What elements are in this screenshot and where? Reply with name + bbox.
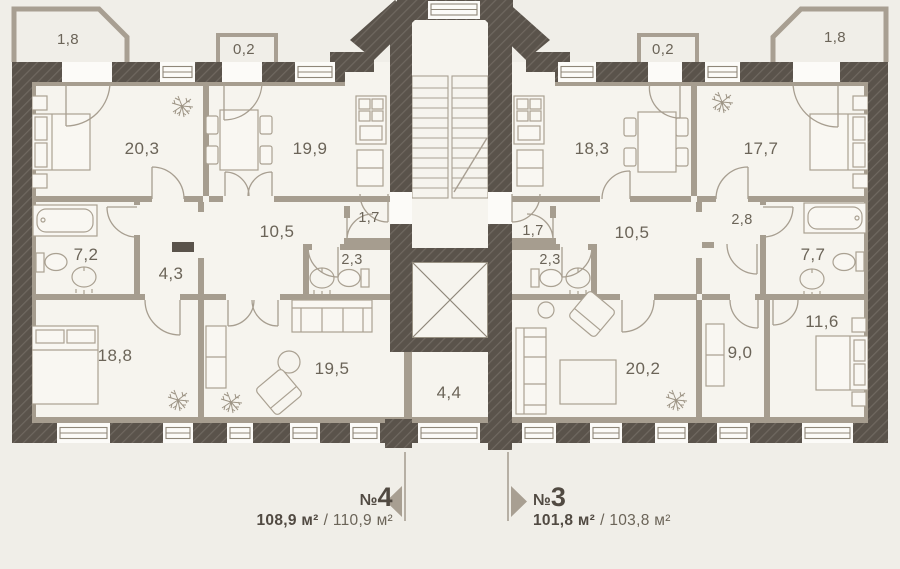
balcony-area-label: 0,2 <box>652 41 674 58</box>
room-area-label: 9,0 <box>728 343 753 362</box>
apartment-4-number: №4 <box>360 482 393 512</box>
kitchen-unit-left <box>356 96 386 186</box>
balcony-area-label: 1,8 <box>824 29 846 46</box>
room-area-label: 11,6 <box>805 312 838 331</box>
room-area-label: 20,3 <box>125 139 160 158</box>
room-area-label: 4,3 <box>159 264 184 283</box>
elevator <box>412 262 488 338</box>
room-area-label: 1,7 <box>522 223 543 239</box>
balcony-area-label: 0,2 <box>233 41 255 58</box>
apartment-3-area: 101,8 м²/ 103,8 м² <box>533 512 671 529</box>
floor-plan-page: 20,3 19,9 10,5 1,7 2,3 7,2 4,3 18,8 19,5… <box>0 0 900 569</box>
room-area-label: 2,8 <box>731 212 752 228</box>
toilet-left <box>36 253 67 272</box>
wardrobe-left <box>206 326 226 388</box>
room-area-label: 7,2 <box>74 245 99 264</box>
room-area-label: 4,4 <box>437 383 462 402</box>
room-area-label: 20,2 <box>626 359 661 378</box>
room-area-label: 1,7 <box>358 210 379 226</box>
wall-ducts <box>172 242 194 252</box>
room-area-label: 7,7 <box>801 245 826 264</box>
floor-plan: 20,3 19,9 10,5 1,7 2,3 7,2 4,3 18,8 19,5… <box>0 0 900 569</box>
bed-bottom-left <box>32 326 98 404</box>
room-area-label: 19,9 <box>293 139 328 158</box>
wardrobe-9-0 <box>706 324 724 386</box>
apartment-3-label[interactable]: №3 101,8 м²/ 103,8 м² <box>533 482 671 529</box>
apartment-4-area: 108,9 м²/ 110,9 м² <box>257 512 394 529</box>
apartment-4-label[interactable]: №4 108,9 м²/ 110,9 м² <box>257 482 394 529</box>
room-area-label: 19,5 <box>315 359 350 378</box>
apartment-dividers <box>405 452 508 521</box>
room-area-label: 2,3 <box>539 252 560 268</box>
room-area-label: 10,5 <box>615 223 650 242</box>
apartment-3-number: №3 <box>533 482 566 512</box>
bathtub-left <box>33 205 97 236</box>
sofa-left <box>292 300 372 332</box>
kitchen-unit-right <box>514 96 544 186</box>
room-area-label: 18,3 <box>575 139 610 158</box>
bathtub-right <box>804 203 866 233</box>
room-area-label: 10,5 <box>260 222 295 241</box>
balcony-area-label: 1,8 <box>57 31 79 48</box>
apartment-3-arrow-icon[interactable] <box>511 486 527 517</box>
room-area-label: 17,7 <box>744 139 779 158</box>
room-area-label: 2,3 <box>341 252 362 268</box>
room-area-label: 18,8 <box>98 346 133 365</box>
sofa-right <box>516 328 546 414</box>
toilet-right <box>833 252 864 271</box>
